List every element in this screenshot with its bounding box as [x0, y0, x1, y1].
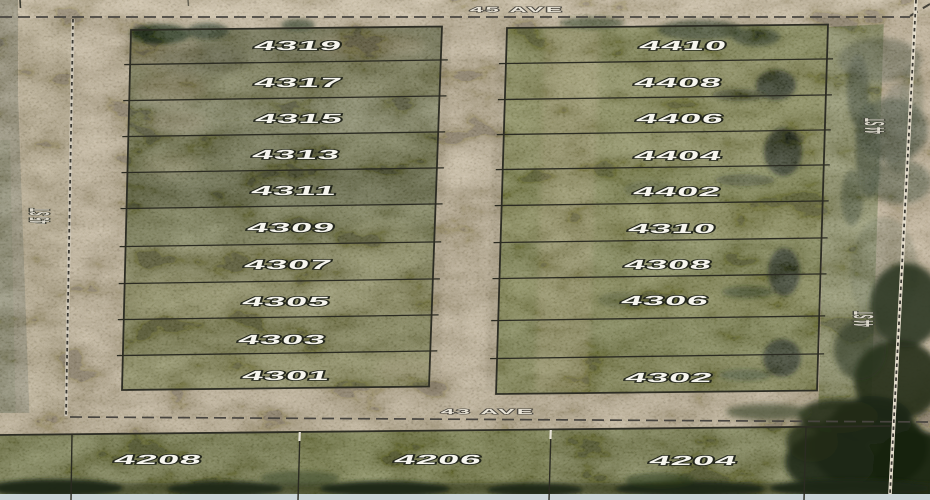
- svg-text:44 ST: 44 ST: [849, 311, 879, 327]
- svg-text:4306: 4306: [619, 293, 711, 308]
- svg-text:4307: 4307: [242, 257, 334, 272]
- svg-text:4303: 4303: [236, 332, 328, 347]
- svg-text:4317: 4317: [252, 75, 344, 90]
- svg-text:4204: 4204: [647, 453, 739, 468]
- svg-text:4410: 4410: [637, 38, 729, 53]
- svg-text:4208: 4208: [112, 452, 204, 467]
- svg-text:4301: 4301: [240, 368, 332, 383]
- svg-text:4408: 4408: [632, 75, 724, 90]
- svg-text:4308: 4308: [622, 257, 714, 272]
- svg-text:4302: 4302: [623, 370, 715, 385]
- svg-text:43 AVE: 43 AVE: [441, 407, 535, 415]
- svg-text:45 ST: 45 ST: [25, 208, 55, 224]
- svg-text:4406: 4406: [634, 111, 726, 126]
- svg-text:4310: 4310: [626, 221, 718, 236]
- svg-text:4313: 4313: [250, 147, 342, 162]
- svg-text:45 AVE: 45 AVE: [470, 5, 564, 13]
- svg-text:4402: 4402: [631, 184, 723, 199]
- svg-text:4311: 4311: [249, 183, 339, 198]
- svg-text:4319: 4319: [252, 38, 344, 53]
- svg-text:4309: 4309: [245, 220, 337, 235]
- svg-text:44 ST: 44 ST: [860, 118, 890, 134]
- svg-text:4305: 4305: [240, 294, 332, 309]
- svg-text:4206: 4206: [392, 452, 484, 467]
- svg-text:4404: 4404: [632, 148, 724, 163]
- svg-text:4315: 4315: [253, 111, 345, 126]
